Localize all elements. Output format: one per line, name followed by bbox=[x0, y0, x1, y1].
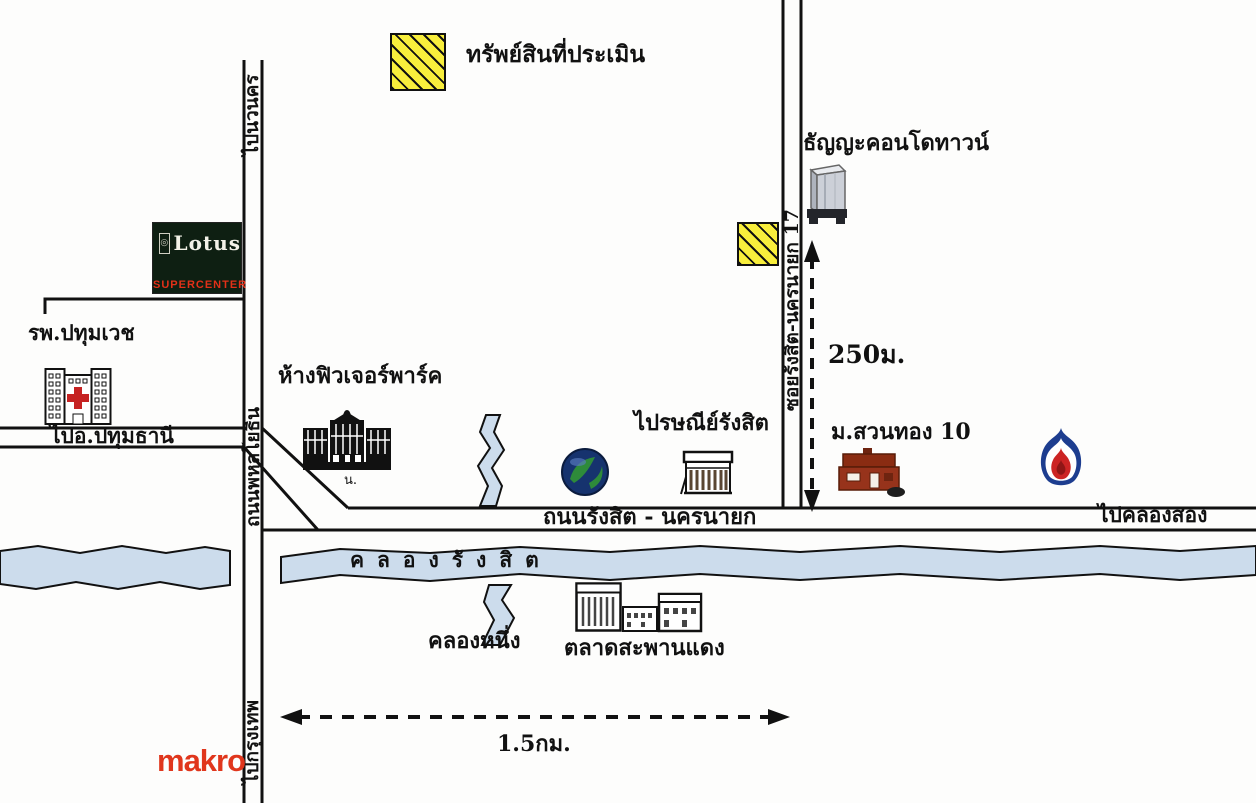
to-nava-nakhon-label: ไปนวนคร bbox=[237, 74, 267, 155]
lotus-mark-icon: ◎ bbox=[159, 233, 170, 254]
future-park-note: น. bbox=[344, 474, 357, 488]
post-office-icon bbox=[676, 450, 734, 497]
distance-1-5km-label: 1.5กม. bbox=[497, 732, 571, 756]
legend-label: ทรัพย์สินที่ประเมิน bbox=[466, 42, 645, 67]
khlong-rangsit-label: คลองรังสิต bbox=[350, 548, 552, 571]
main-road-label: ถนนรังสิต - นครนายก bbox=[543, 505, 756, 529]
lotus-logo: ◎ Lotus SUPERCENTER bbox=[152, 222, 242, 294]
future-park-label: ห้างฟิวเจอร์พาร์ค bbox=[278, 364, 442, 388]
suan-thong-label: ม.สวนทอง 10 bbox=[831, 420, 971, 444]
map-canvas: ทรัพย์สินที่ประเมิน ไปนวนคร ถนนพหลโยธิน … bbox=[0, 0, 1256, 803]
market-icon bbox=[575, 582, 705, 634]
distance-1-5km-arrow bbox=[280, 709, 790, 725]
lotus-name: Lotus bbox=[174, 231, 241, 255]
roads-artwork bbox=[0, 0, 1256, 803]
khlong-nueng-label: คลองหนึ่ง bbox=[428, 629, 520, 653]
property-marker bbox=[737, 222, 779, 266]
suan-thong-icon bbox=[836, 448, 908, 498]
distance-250m-label: 250ม. bbox=[828, 341, 905, 369]
globe-logo-icon bbox=[560, 447, 610, 497]
makro-logo: makro bbox=[157, 743, 245, 779]
market-label: ตลาดสะพานแดง bbox=[564, 636, 725, 660]
lotus-access-road bbox=[45, 299, 244, 314]
phahonyothin-road-label: ถนนพหลโยธิน bbox=[238, 407, 268, 527]
condo-building-icon bbox=[803, 162, 849, 226]
lotus-supercenter-label: SUPERCENTER bbox=[153, 279, 241, 291]
future-park-icon bbox=[303, 410, 391, 470]
hospital-icon bbox=[44, 360, 112, 426]
khlong-rangsit-canal-west bbox=[0, 546, 230, 589]
ptt-logo-icon bbox=[1033, 426, 1089, 500]
condo-label: ธัญญะคอนโดทาวน์ bbox=[803, 131, 989, 155]
khlong-nueng-canal-upper bbox=[478, 415, 504, 506]
post-office-label: ไปรษณีย์รังสิต bbox=[634, 411, 769, 435]
soi17-label: ซอยรังสิต-นครนายก 17 bbox=[777, 209, 807, 411]
to-khlong-song-label: ไปคลองสอง bbox=[1098, 503, 1207, 526]
to-pathum-thani-label: ไปอ.ปทุมธานี bbox=[50, 424, 174, 447]
legend-swatch bbox=[390, 33, 446, 91]
hospital-label: รพ.ปทุมเวช bbox=[28, 321, 135, 344]
